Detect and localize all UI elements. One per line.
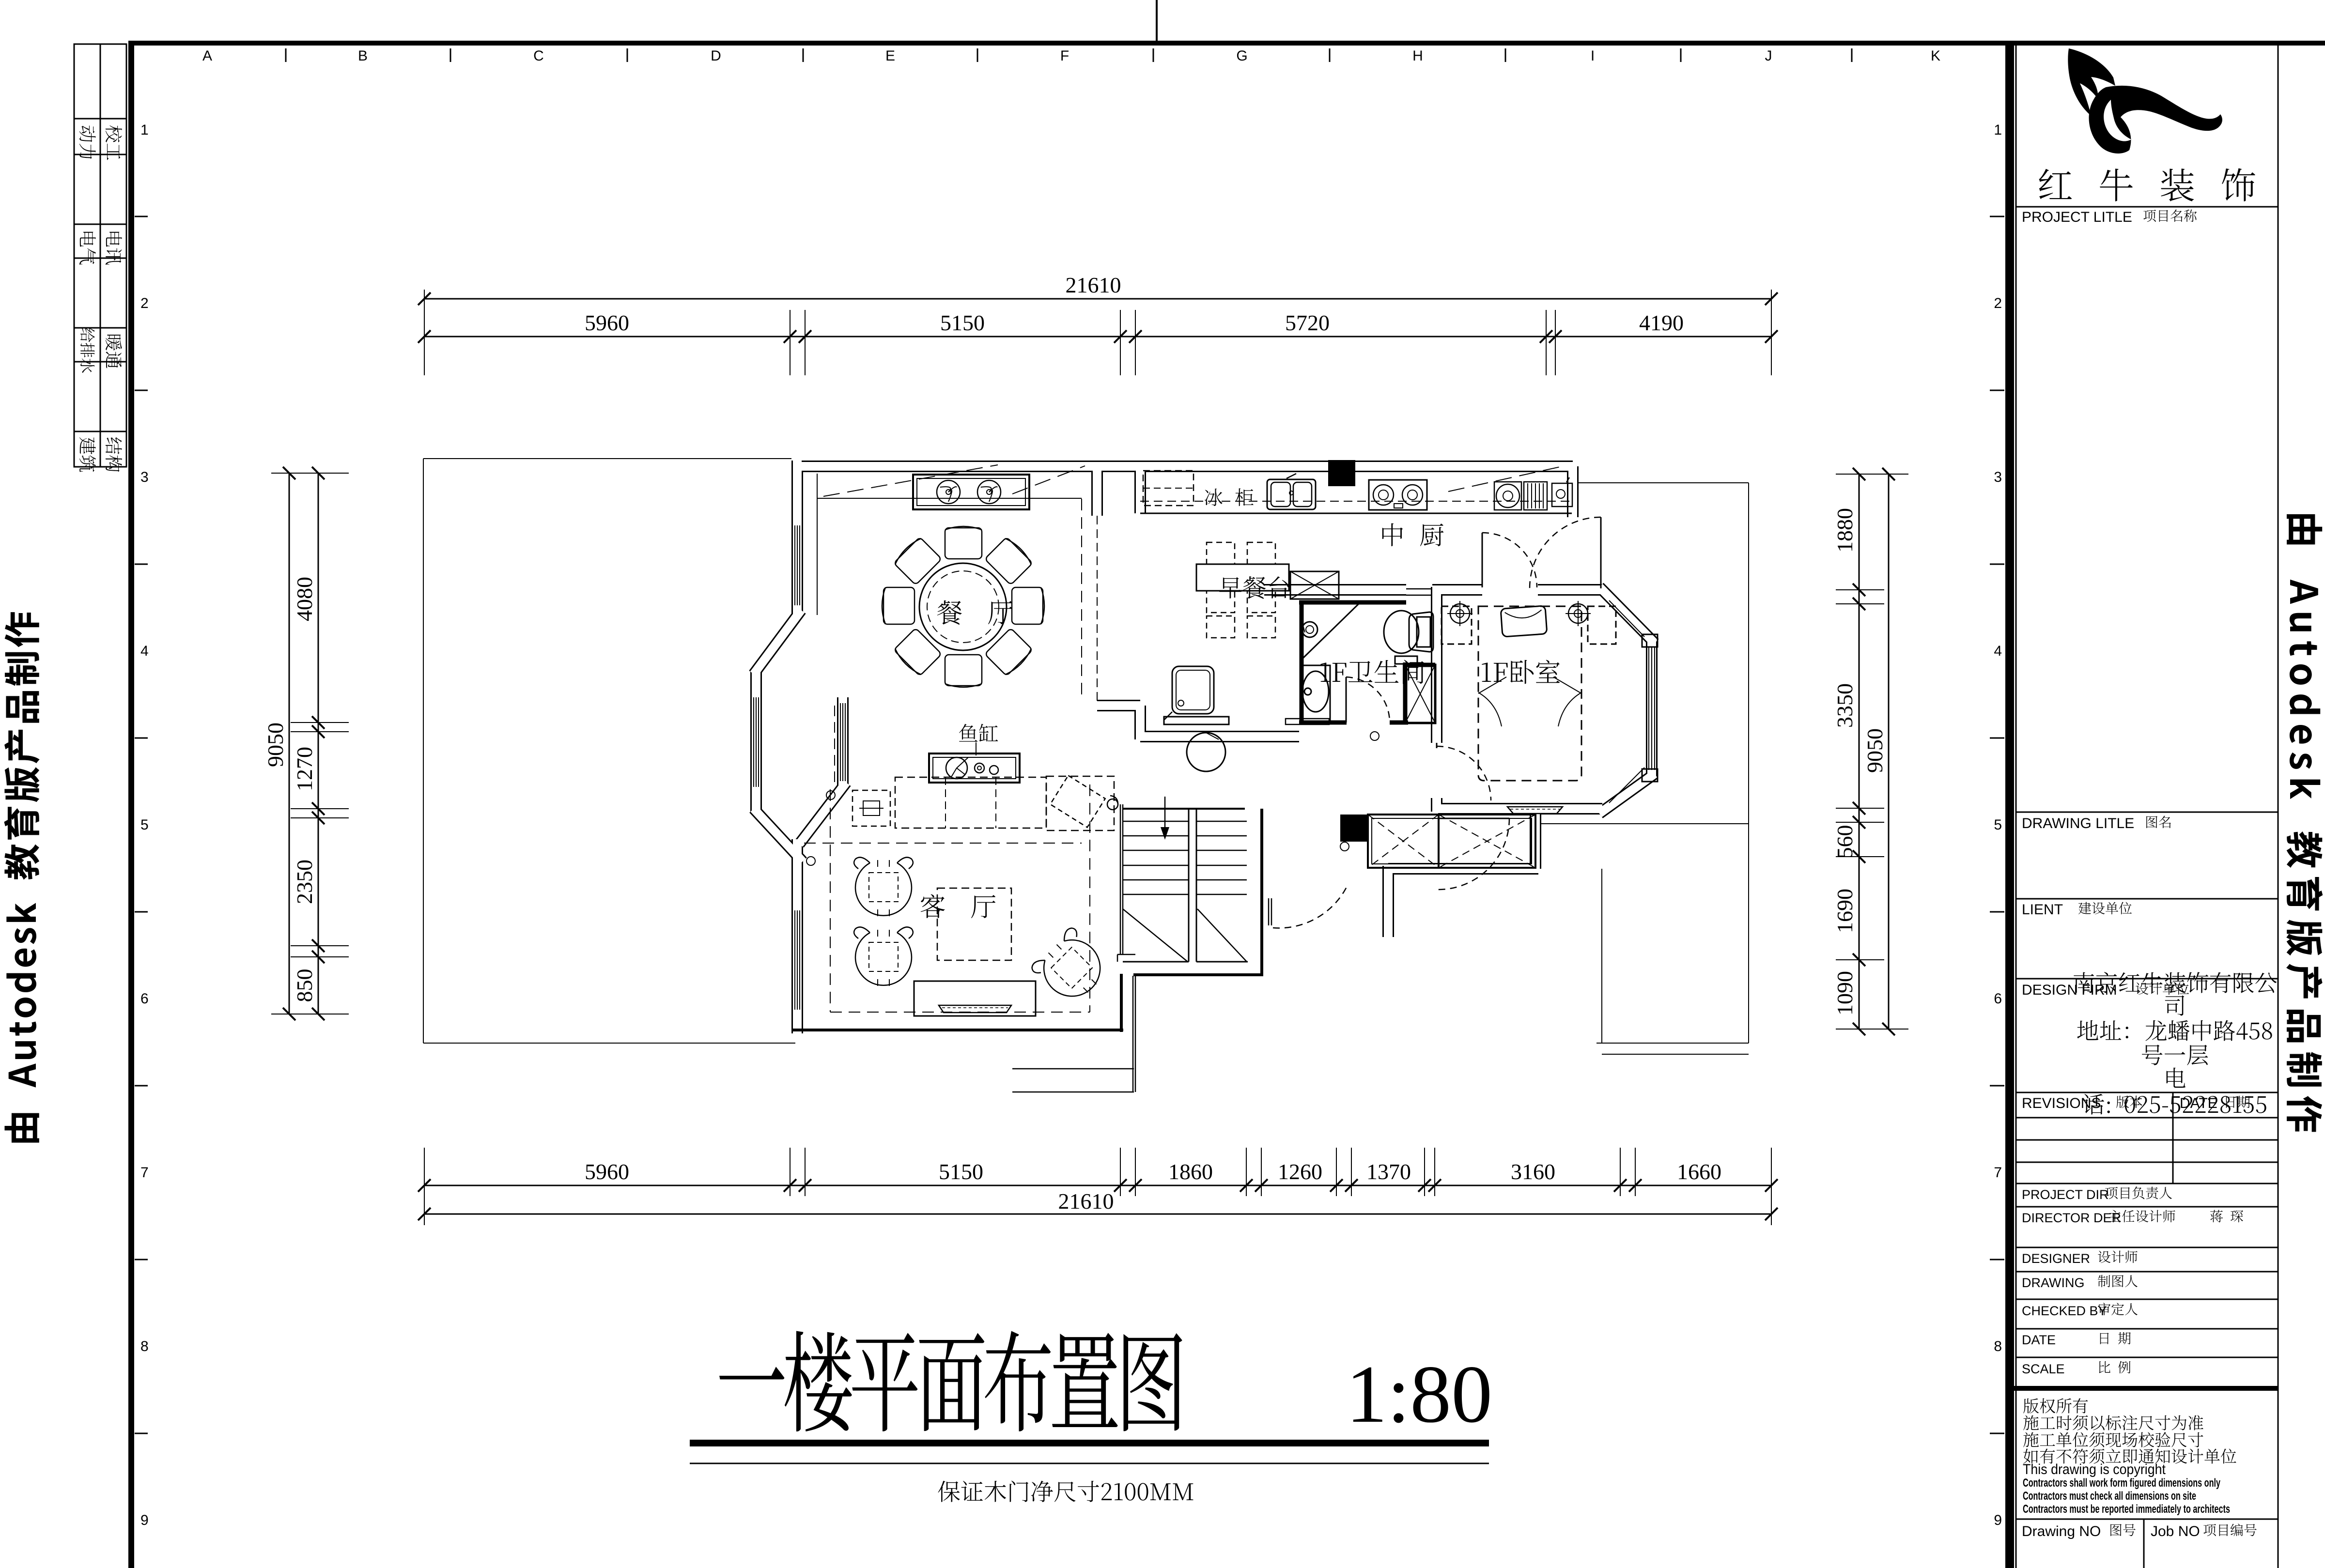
svg-text:1:80: 1:80 <box>1346 1349 1492 1440</box>
svg-text:2: 2 <box>1994 295 2002 311</box>
svg-text:SCALE: SCALE <box>2022 1362 2065 1376</box>
svg-text:G: G <box>1236 48 1247 64</box>
svg-text:5960: 5960 <box>585 1159 629 1184</box>
svg-text:4080: 4080 <box>292 577 317 621</box>
svg-text:4190: 4190 <box>1639 310 1684 335</box>
svg-text:7: 7 <box>1994 1165 2002 1181</box>
svg-text:3350: 3350 <box>1832 683 1857 728</box>
svg-text:9: 9 <box>140 1512 149 1528</box>
svg-text:5150: 5150 <box>939 1159 983 1184</box>
svg-text:B: B <box>358 48 368 64</box>
svg-text:7: 7 <box>140 1165 149 1181</box>
svg-text:K: K <box>1931 48 1940 64</box>
svg-text:DIRECTOR DER: DIRECTOR DER <box>2022 1211 2121 1225</box>
svg-text:9: 9 <box>1994 1512 2002 1528</box>
svg-text:PROJECT LITLE: PROJECT LITLE <box>2022 209 2132 225</box>
svg-text:850: 850 <box>292 969 317 1002</box>
svg-text:DRAWING LITLE: DRAWING LITLE <box>2022 815 2134 831</box>
svg-text:5: 5 <box>1994 817 2002 833</box>
svg-text:5960: 5960 <box>585 310 629 335</box>
svg-text:3160: 3160 <box>1511 1159 1555 1184</box>
svg-text:Contractors must be reported i: Contractors must be reported immediately… <box>2023 1503 2230 1516</box>
svg-text:I: I <box>1591 48 1595 64</box>
svg-text:Contractors shall work form fi: Contractors shall work form figured dime… <box>2023 1476 2220 1490</box>
svg-text:Job NO: Job NO <box>2151 1523 2200 1539</box>
svg-text:1270: 1270 <box>292 747 317 791</box>
svg-text:CHECKED BY: CHECKED BY <box>2022 1304 2107 1318</box>
svg-text:D: D <box>711 48 721 64</box>
svg-text:H: H <box>1412 48 1423 64</box>
svg-text:Contractors must check all dim: Contractors must check all dimensions on… <box>2023 1490 2196 1503</box>
svg-text:3: 3 <box>140 469 149 485</box>
svg-text:4: 4 <box>140 643 149 659</box>
svg-text:This drawing is copyright: This drawing is copyright <box>2023 1461 2166 1477</box>
svg-text:PROJECT DIR: PROJECT DIR <box>2022 1187 2109 1202</box>
svg-text:2350: 2350 <box>292 860 317 904</box>
svg-text:1260: 1260 <box>1278 1159 1322 1184</box>
svg-text:1860: 1860 <box>1168 1159 1213 1184</box>
svg-text:C: C <box>533 48 544 64</box>
svg-text:8: 8 <box>140 1338 149 1354</box>
svg-text:8: 8 <box>1994 1338 2002 1354</box>
svg-text:REVISIONS: REVISIONS <box>2022 1095 2101 1111</box>
svg-text:1: 1 <box>1994 122 2002 138</box>
svg-text:1660: 1660 <box>1677 1159 1721 1184</box>
svg-text:9050: 9050 <box>263 723 288 767</box>
svg-text:21610: 21610 <box>1066 273 1121 297</box>
svg-text:DATE: DATE <box>2180 1095 2217 1111</box>
svg-text:E: E <box>885 48 895 64</box>
svg-text:560: 560 <box>1832 825 1857 859</box>
svg-text:DATE: DATE <box>2022 1333 2056 1347</box>
svg-text:1090: 1090 <box>1832 971 1857 1015</box>
svg-text:1: 1 <box>140 122 149 138</box>
svg-text:A: A <box>202 48 212 64</box>
svg-text:21610: 21610 <box>1058 1189 1114 1214</box>
svg-text:4: 4 <box>1994 643 2002 659</box>
svg-text:DRAWING: DRAWING <box>2022 1276 2085 1290</box>
svg-text:F: F <box>1060 48 1069 64</box>
svg-text:5: 5 <box>140 817 149 833</box>
svg-text:1880: 1880 <box>1832 508 1857 553</box>
svg-text:DESIGNER: DESIGNER <box>2022 1251 2090 1266</box>
svg-text:5720: 5720 <box>1285 310 1330 335</box>
svg-text:1690: 1690 <box>1832 889 1857 933</box>
svg-text:Drawing NO: Drawing NO <box>2022 1523 2101 1539</box>
svg-text:5150: 5150 <box>940 310 985 335</box>
svg-text:9050: 9050 <box>1862 728 1887 773</box>
svg-text:6: 6 <box>1994 991 2002 1007</box>
svg-text:LIENT: LIENT <box>2022 902 2063 918</box>
svg-text:6: 6 <box>140 991 149 1007</box>
svg-text:J: J <box>1765 48 1772 64</box>
svg-text:2: 2 <box>140 295 149 311</box>
svg-text:1370: 1370 <box>1366 1159 1411 1184</box>
svg-text:3: 3 <box>1994 469 2002 485</box>
